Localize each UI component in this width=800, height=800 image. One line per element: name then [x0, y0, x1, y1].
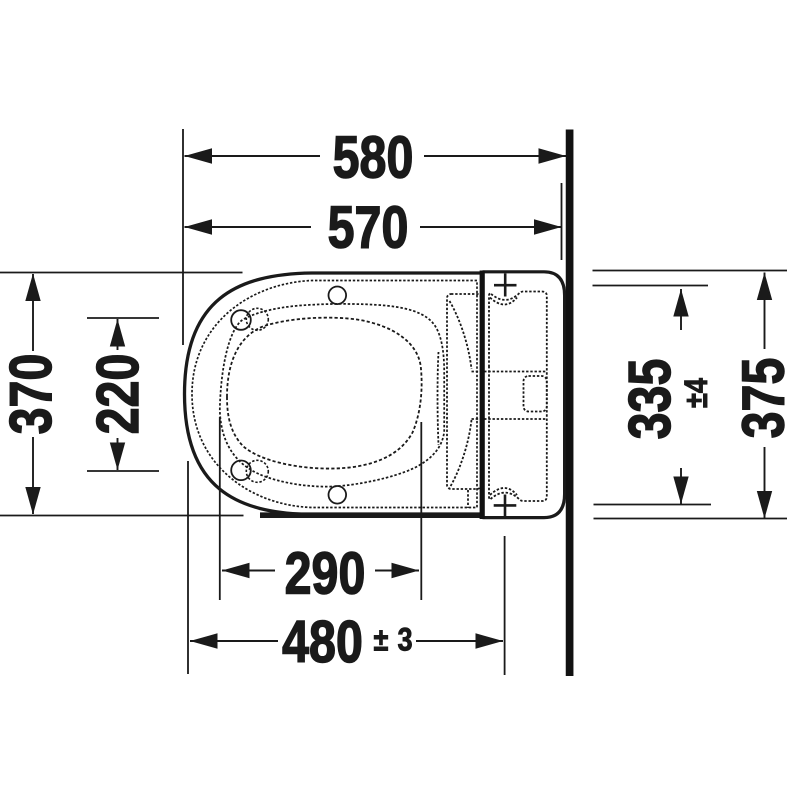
svg-text:370: 370	[0, 354, 64, 435]
svg-text:570: 570	[328, 195, 409, 261]
svg-text:220: 220	[86, 354, 152, 435]
svg-text:±: ±	[374, 622, 389, 658]
svg-text:3: 3	[397, 622, 412, 658]
svg-text:480: 480	[282, 610, 363, 676]
svg-text:375: 375	[731, 358, 797, 439]
svg-text:580: 580	[333, 125, 414, 191]
svg-text:335: 335	[618, 359, 684, 440]
svg-text:±4: ±4	[679, 378, 715, 408]
svg-text:290: 290	[285, 541, 366, 607]
